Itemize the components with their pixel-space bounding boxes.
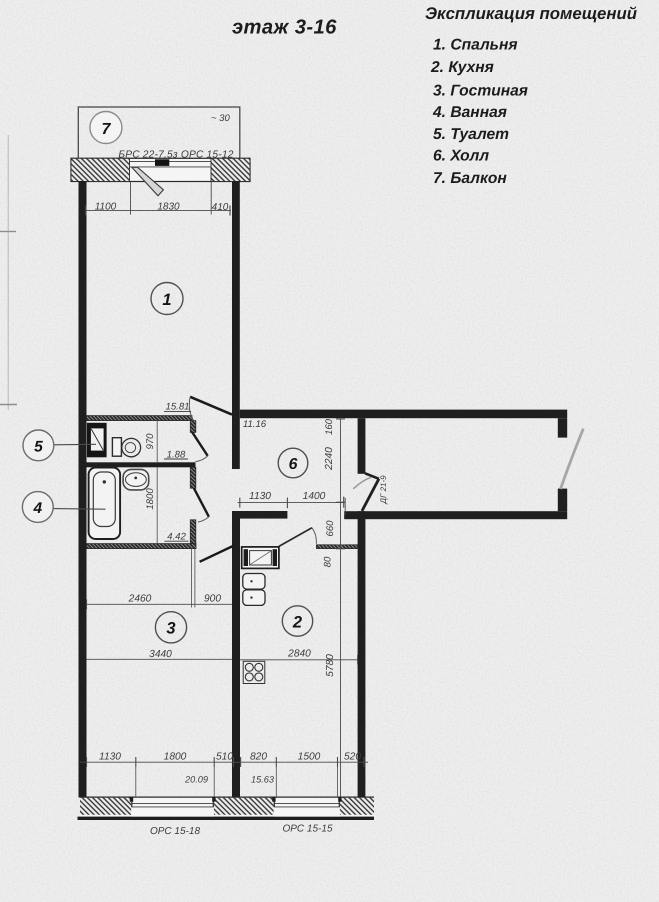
svg-text:2: 2 [292, 613, 302, 631]
svg-text:2840: 2840 [287, 649, 311, 660]
svg-text:1500: 1500 [298, 752, 321, 763]
svg-text:160: 160 [324, 418, 335, 435]
svg-text:ДГ 21-9: ДГ 21-9 [379, 475, 388, 505]
svg-text:3440: 3440 [149, 649, 172, 660]
svg-text:1100: 1100 [95, 202, 117, 213]
svg-text:2240: 2240 [324, 447, 335, 471]
svg-text:820: 820 [250, 752, 267, 763]
svg-text:Экспликация помещений: Экспликация помещений [425, 4, 637, 23]
svg-text:~ 30: ~ 30 [211, 113, 230, 124]
svg-text:1800: 1800 [145, 488, 156, 510]
svg-text:15.81: 15.81 [165, 402, 189, 413]
svg-text:2460: 2460 [128, 594, 152, 605]
svg-text:4: 4 [32, 500, 42, 517]
svg-text:520: 520 [344, 752, 361, 763]
svg-text:5. Туалет: 5. Туалет [433, 126, 509, 143]
svg-text:7: 7 [101, 121, 111, 138]
svg-text:2. Кухня: 2. Кухня [430, 59, 494, 76]
svg-text:660: 660 [325, 520, 336, 537]
svg-text:6. Холл: 6. Холл [433, 148, 489, 165]
svg-text:20.09: 20.09 [184, 775, 208, 785]
svg-text:3: 3 [166, 620, 175, 638]
svg-text:ОРС 15-18: ОРС 15-18 [150, 826, 200, 837]
svg-text:1830: 1830 [157, 202, 180, 213]
svg-text:5: 5 [34, 439, 43, 456]
svg-text:1. Спальня: 1. Спальня [433, 37, 518, 54]
svg-text:80: 80 [323, 556, 334, 567]
svg-text:ОРС 15-15: ОРС 15-15 [282, 824, 332, 835]
svg-text:1130: 1130 [99, 752, 121, 763]
svg-text:900: 900 [204, 594, 221, 605]
svg-text:1130: 1130 [249, 491, 271, 502]
svg-text:4. Ванная: 4. Ванная [432, 104, 507, 121]
svg-text:410: 410 [212, 202, 229, 213]
svg-text:этаж 3-16: этаж 3-16 [232, 17, 337, 39]
svg-text:3. Гостиная: 3. Гостиная [433, 83, 528, 100]
svg-text:6: 6 [289, 456, 298, 473]
svg-text:7. Балкон: 7. Балкон [433, 170, 507, 187]
svg-text:1400: 1400 [303, 491, 326, 502]
svg-text:11.16: 11.16 [243, 419, 267, 430]
svg-text:5780: 5780 [325, 654, 336, 677]
svg-text:1: 1 [162, 291, 171, 309]
svg-text:510: 510 [216, 752, 233, 763]
svg-text:970: 970 [145, 433, 156, 450]
svg-text:15.63: 15.63 [251, 775, 275, 785]
svg-text:1800: 1800 [164, 752, 187, 763]
